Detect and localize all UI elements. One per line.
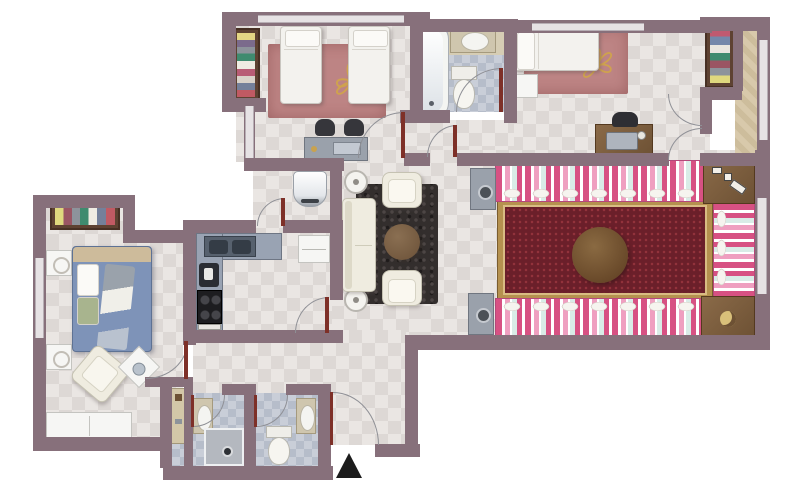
drain xyxy=(429,101,434,106)
kids-bed-1 xyxy=(280,26,322,104)
lamp xyxy=(53,351,70,368)
wall xyxy=(400,110,450,123)
window xyxy=(759,40,768,140)
living-door-leaf xyxy=(453,125,457,157)
heater-base xyxy=(301,199,319,203)
refrigerator xyxy=(298,235,330,263)
blanket-fold xyxy=(284,49,318,50)
toilet-room-door-leaf xyxy=(254,395,257,427)
master-door-leaf xyxy=(184,341,188,379)
entrance-door-leaf xyxy=(330,392,333,445)
armchair-top xyxy=(382,172,422,208)
seat-bolsters xyxy=(498,187,704,200)
wall xyxy=(405,335,418,447)
sofa-back xyxy=(345,201,352,289)
seat-bolsters xyxy=(498,300,704,313)
wall xyxy=(330,220,343,300)
headboard xyxy=(73,247,151,262)
round-living-table xyxy=(572,227,628,283)
wall xyxy=(33,437,168,451)
blanket-fold xyxy=(352,49,386,50)
strewn-clothes xyxy=(97,264,136,351)
kitchen-door-leaf xyxy=(281,198,285,226)
toilet-room-sink xyxy=(296,398,316,434)
mouse xyxy=(637,131,646,140)
wall xyxy=(700,153,759,166)
window xyxy=(258,15,404,23)
bedroom-bed xyxy=(513,27,599,71)
pillow xyxy=(285,30,320,47)
wall xyxy=(457,153,669,166)
domino xyxy=(729,179,747,195)
seat-bolsters xyxy=(715,205,728,295)
seat-cushion xyxy=(80,354,119,393)
cabinet-item xyxy=(175,394,182,401)
kitchen-double-sink xyxy=(204,236,256,257)
folded-clothes xyxy=(237,33,255,97)
master-nightstand-1 xyxy=(46,250,72,276)
kids-bed-2 xyxy=(348,26,390,104)
wall xyxy=(183,220,256,233)
wall xyxy=(222,12,236,112)
sink-basin-left xyxy=(209,240,228,254)
table-center xyxy=(353,297,359,303)
wall xyxy=(163,466,333,480)
window xyxy=(757,198,767,294)
computer xyxy=(606,132,638,150)
media-unit-bottom xyxy=(468,293,494,335)
majlis-seating-right xyxy=(713,202,755,298)
coffee-table xyxy=(384,224,420,260)
seat-cushion xyxy=(388,279,416,303)
water-heater xyxy=(293,171,327,207)
wall xyxy=(244,158,344,171)
sink-basin xyxy=(461,32,489,51)
desk-chair xyxy=(612,112,638,127)
wall xyxy=(123,230,191,243)
kitchen-service-door-leaf xyxy=(325,297,329,333)
stove xyxy=(197,290,222,324)
window xyxy=(532,23,644,31)
wall xyxy=(330,158,342,226)
pillow xyxy=(353,30,388,47)
wall xyxy=(410,24,423,123)
kids-chair-2 xyxy=(344,119,364,136)
master-bed xyxy=(72,246,152,352)
sink-basin xyxy=(300,405,315,431)
bedroom-wardrobe xyxy=(705,24,735,88)
wall xyxy=(160,384,172,468)
cushion-split xyxy=(355,245,372,246)
majlis-seating-bottom xyxy=(495,298,707,338)
round-side-table-top xyxy=(344,170,368,194)
desk-lamp xyxy=(311,146,317,152)
media-unit-top xyxy=(470,168,496,210)
master-dresser xyxy=(46,412,132,438)
coffee-machine xyxy=(199,263,219,287)
corner-side-table xyxy=(701,296,755,340)
speaker xyxy=(476,308,491,323)
speaker xyxy=(478,185,493,200)
lamp xyxy=(53,257,70,274)
window xyxy=(35,258,44,338)
entrance-marker xyxy=(336,453,362,478)
pillow-green xyxy=(77,297,99,325)
wall xyxy=(375,444,420,457)
drain xyxy=(222,446,233,457)
floor-plan xyxy=(0,0,800,500)
drawer-split xyxy=(89,416,90,436)
bathroom-door-leaf xyxy=(499,68,503,112)
wall xyxy=(286,384,320,395)
seat-cushion xyxy=(388,179,416,203)
kids-wardrobe xyxy=(232,28,260,102)
majlis-seating-top xyxy=(495,160,707,202)
wall xyxy=(504,24,517,123)
pillow xyxy=(517,32,535,70)
folded-clothes xyxy=(55,207,115,225)
crescent-ashtray xyxy=(720,311,736,327)
wall xyxy=(33,195,135,208)
wall xyxy=(418,335,770,350)
sink-basin-right xyxy=(232,240,251,254)
master-nightstand-2 xyxy=(46,344,72,370)
kids-door-leaf xyxy=(401,112,405,158)
kids-chair-1 xyxy=(315,119,335,136)
laptop xyxy=(333,142,361,155)
shower-tray xyxy=(204,428,244,466)
blanket-fold xyxy=(538,31,539,69)
domino xyxy=(712,167,722,174)
lounge-sofa xyxy=(342,198,376,292)
wall xyxy=(733,17,743,91)
armchair-bottom xyxy=(382,270,422,306)
cabinet-item xyxy=(175,419,182,424)
wall xyxy=(183,228,196,345)
carafe xyxy=(204,268,213,280)
shower-room-door-leaf xyxy=(191,395,194,427)
window xyxy=(245,106,254,158)
hall-cabinet xyxy=(171,388,185,444)
pillow-white xyxy=(77,264,99,296)
folded-clothes xyxy=(710,29,730,83)
fridge-door-split xyxy=(302,249,326,250)
dice xyxy=(724,173,732,181)
table-center xyxy=(353,179,359,185)
toilet-bowl-2 xyxy=(268,437,290,465)
